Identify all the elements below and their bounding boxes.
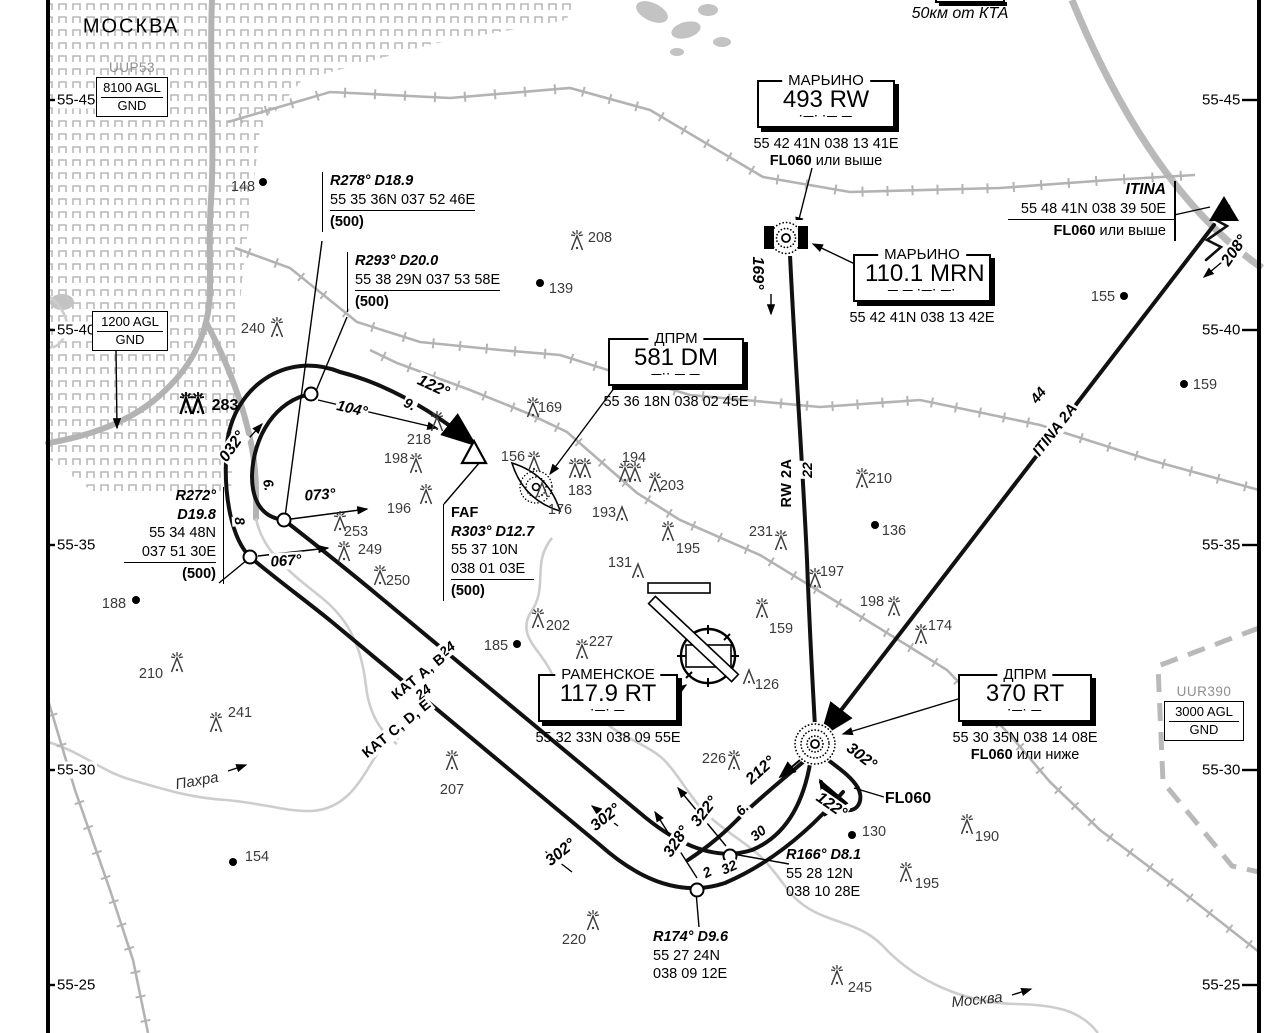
track-pt-outer-arc: [226, 366, 340, 557]
obstacle-symbol-207: [446, 750, 458, 770]
obstacle-symbol-250: [374, 565, 386, 585]
obstacle-symbol-198: [888, 596, 900, 616]
obstacle-symbol-208: [571, 230, 583, 250]
obstacle-symbol-253: [334, 511, 346, 531]
obstacle-symbol-210: [856, 468, 868, 488]
dm-locator-symbol: [506, 457, 567, 518]
obstacle-symbol-136: [871, 521, 879, 529]
obstacle-symbol-185: [513, 640, 521, 648]
arrow-302-lower: [546, 852, 572, 872]
itina-triangle: [1209, 196, 1239, 221]
track-itina2a: [822, 225, 1214, 735]
obstacle-symbol-130: [848, 831, 856, 839]
chart-linework: [0, 0, 1280, 1033]
obstacle-symbol-154: [229, 858, 237, 866]
obstacle-symbol-190: [961, 814, 973, 834]
obstacle-symbol-139: [536, 279, 544, 287]
obstacle-symbol-131: [633, 564, 644, 578]
range-ring-arc: [1072, 0, 1262, 268]
obstacle-symbol-159: [1180, 380, 1188, 388]
leader-mrn: [813, 244, 857, 265]
obstacle-symbol-196: [420, 484, 432, 504]
obstacle-symbol-245: [831, 965, 843, 985]
procedure-tracks: [226, 206, 1229, 888]
obstacle-symbol-169: [527, 397, 539, 417]
obstacle-symbol-188: [132, 596, 140, 604]
obstacles-layer: [132, 178, 1188, 985]
rt-ndb-symbol: [793, 722, 837, 766]
obstacle-symbol-240: [271, 317, 283, 337]
railway-2: [370, 350, 1259, 952]
obstacle-symbol-231: [775, 530, 787, 550]
obstacle-symbol-203: [649, 472, 661, 492]
mrn-ndb-symbol: [760, 220, 812, 256]
obstacle-symbol-195: [900, 862, 912, 882]
obstacle-symbol-227: [576, 639, 588, 659]
obstacle-symbol-148: [259, 178, 267, 186]
obstacle-symbol-195: [662, 521, 674, 541]
river-pakhra: [48, 738, 399, 811]
cutoff-box: [936, 0, 1007, 6]
river-moskva: [793, 896, 1098, 1033]
obstacle-symbol-220: [587, 910, 599, 930]
approach-chart: 1482081391551592402832181691561761831941…: [0, 0, 1280, 1033]
arrow-302-upper: [592, 806, 618, 826]
airport-symbol: [648, 583, 739, 687]
obstacle-symbol-174: [915, 624, 927, 644]
fix-circles: [244, 388, 737, 897]
leader-r278: [285, 241, 322, 517]
track-rw2a: [790, 255, 815, 727]
arrow-322: [678, 788, 726, 846]
obstacle-symbol-183: [569, 458, 591, 478]
leader-370: [843, 699, 958, 734]
uur390-boundary: [1158, 628, 1259, 872]
city-area: [48, 0, 578, 497]
obstacle-symbol-159: [756, 598, 768, 618]
arrow-moskva: [1012, 989, 1031, 995]
obstacle-symbol-155: [1120, 292, 1128, 300]
obstacle-symbol-202: [532, 608, 544, 628]
obstacle-symbol-193: [617, 507, 628, 521]
obstacle-symbol-198: [410, 453, 422, 473]
leader-ramenskoe: [663, 685, 686, 701]
obstacle-symbol-156: [528, 451, 540, 471]
obstacle-symbol-249: [338, 541, 350, 561]
railway-0: [228, 84, 1195, 196]
obstacle-symbol-241: [210, 712, 222, 732]
faf-triangle: [462, 441, 486, 463]
obstacle-symbol-197: [809, 568, 821, 588]
railway-3: [48, 700, 151, 1033]
obstacle-symbol-126: [744, 670, 755, 684]
leader-1200agl: [116, 349, 117, 428]
arrow-208: [1204, 262, 1222, 277]
leader-493: [797, 168, 812, 227]
obstacle-symbol-226: [728, 750, 740, 770]
leader-r293: [313, 317, 347, 398]
obstacle-symbol-210: [171, 652, 183, 672]
arrow-pakhra: [228, 765, 246, 771]
leader-r272: [219, 560, 247, 583]
track-pt-inner-arc: [252, 394, 311, 520]
faf-diagonal: [444, 462, 480, 504]
arrow-073: [291, 509, 367, 519]
track-kat-cde: [250, 557, 843, 888]
